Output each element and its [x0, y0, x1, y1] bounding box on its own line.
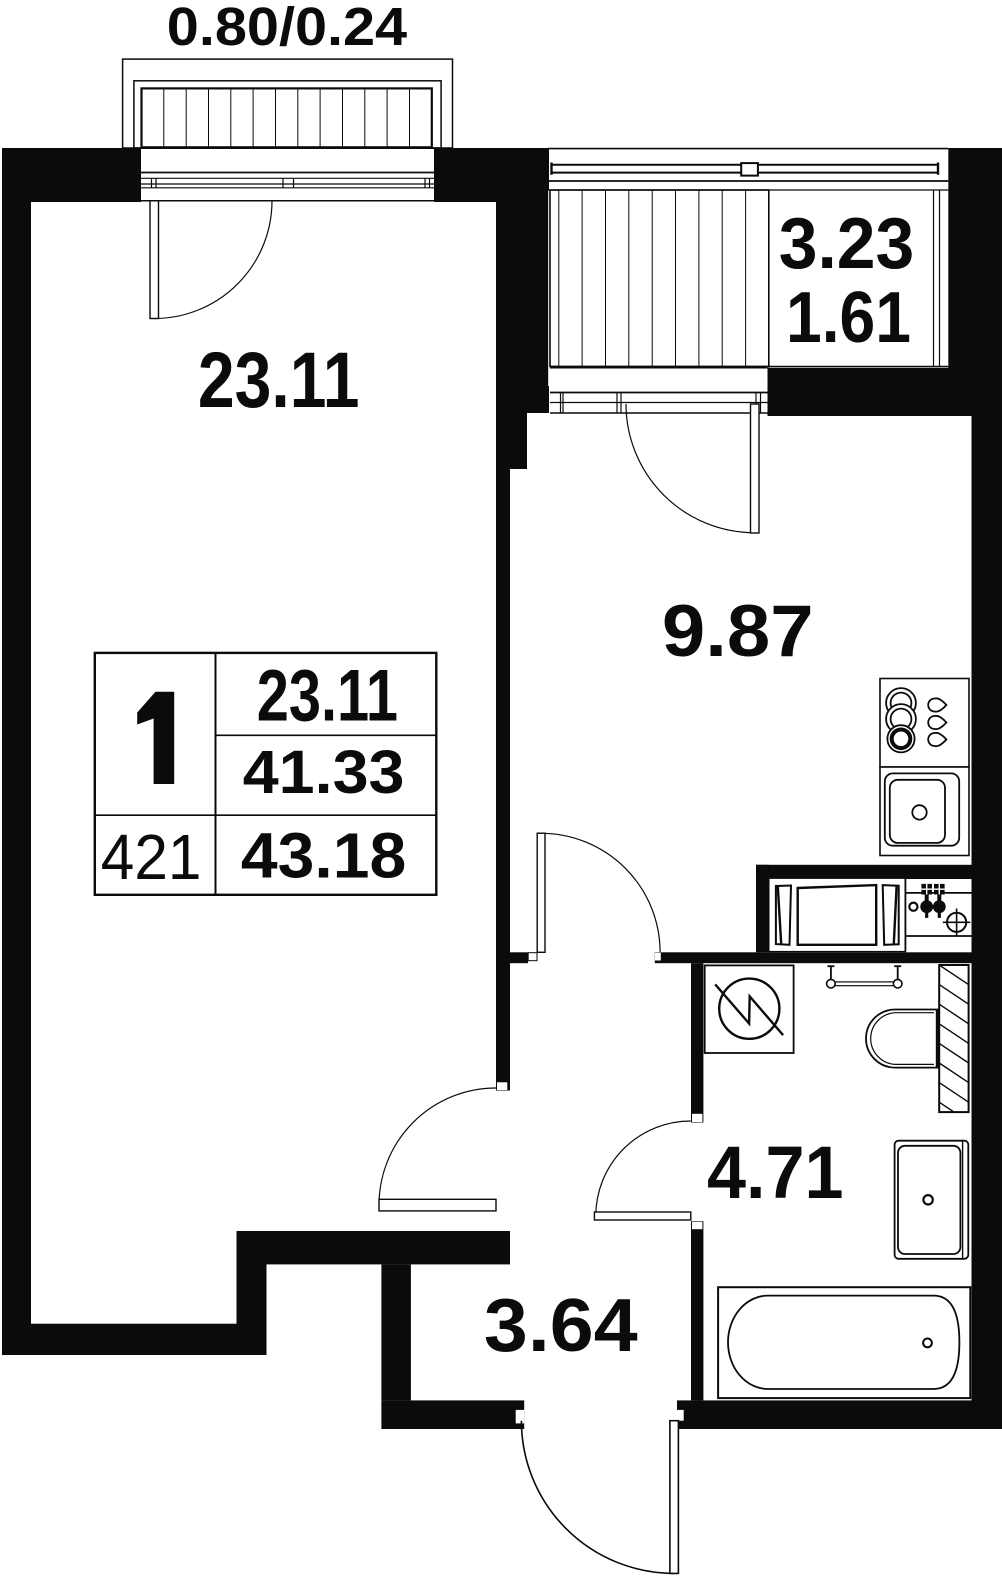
- svg-text:1.61: 1.61: [786, 278, 911, 358]
- svg-text:9.87: 9.87: [662, 589, 814, 672]
- svg-text:43.18: 43.18: [241, 820, 406, 891]
- svg-text:23.11: 23.11: [257, 656, 398, 737]
- svg-text:23.11: 23.11: [198, 336, 360, 424]
- svg-text:0.80/0.24: 0.80/0.24: [167, 0, 407, 57]
- svg-text:421: 421: [101, 822, 202, 893]
- svg-text:3.23: 3.23: [779, 203, 915, 284]
- svg-text:3.64: 3.64: [484, 1283, 638, 1367]
- svg-text:4.71: 4.71: [707, 1131, 844, 1214]
- svg-text:41.33: 41.33: [243, 738, 405, 806]
